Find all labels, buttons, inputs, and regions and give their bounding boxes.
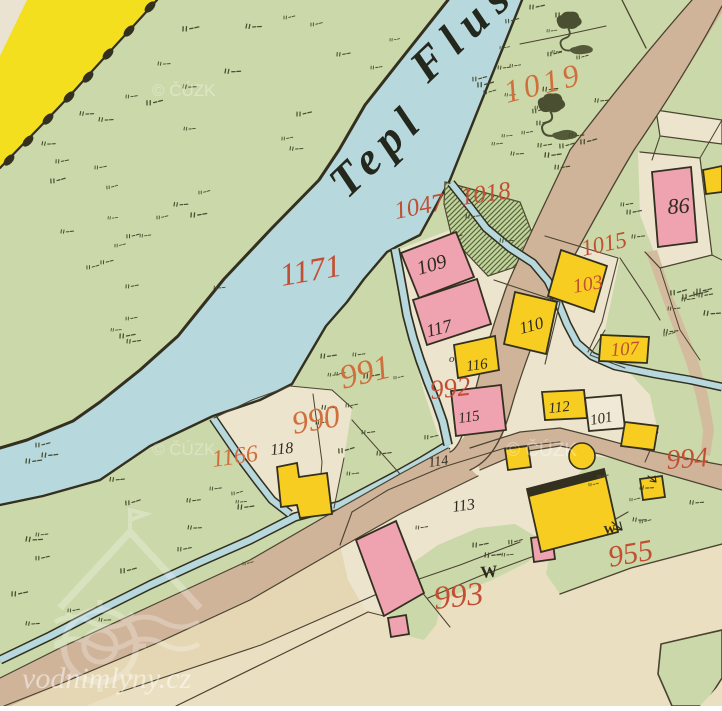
svg-text:© ČÚZK: © ČÚZK bbox=[152, 440, 216, 459]
svg-text:86: 86 bbox=[667, 193, 691, 219]
svg-text:112: 112 bbox=[548, 399, 571, 417]
svg-text:W: W bbox=[480, 562, 499, 582]
svg-text:116: 116 bbox=[465, 356, 489, 375]
svg-text:107: 107 bbox=[610, 338, 641, 361]
svg-text:993: 993 bbox=[432, 576, 485, 617]
svg-text:vodnimlyny.cz: vodnimlyny.cz bbox=[22, 662, 191, 695]
svg-text:994: 994 bbox=[665, 442, 709, 476]
svg-text:© ČÚZK: © ČÚZK bbox=[152, 81, 216, 100]
svg-text:115: 115 bbox=[457, 408, 481, 427]
svg-text:o: o bbox=[449, 353, 455, 365]
svg-text:© ČÚZK: © ČÚZK bbox=[506, 439, 577, 461]
svg-text:118: 118 bbox=[270, 440, 294, 459]
svg-text:113: 113 bbox=[451, 496, 476, 516]
svg-text:114: 114 bbox=[427, 453, 449, 471]
svg-text:992: 992 bbox=[428, 371, 471, 405]
